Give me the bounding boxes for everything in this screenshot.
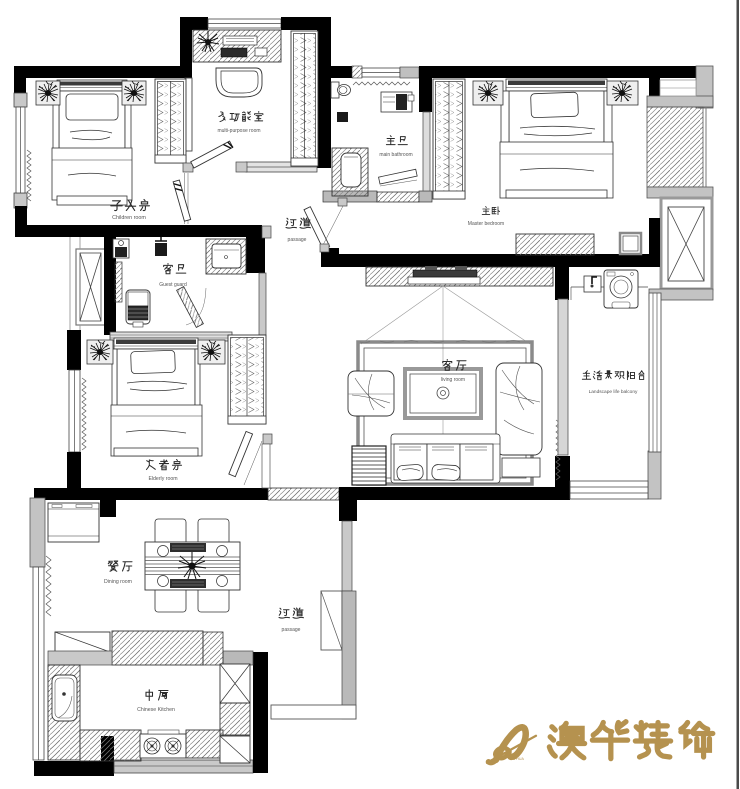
svg-text:Master bedroom: Master bedroom [468, 221, 504, 227]
svg-text:Guest guard: Guest guard [159, 282, 187, 288]
svg-text:AO HUA: AO HUA [510, 757, 524, 761]
svg-text:living room: living room [441, 377, 465, 383]
svg-text:Elderly room: Elderly room [148, 476, 177, 482]
svg-text:Landscape life balcony: Landscape life balcony [589, 389, 638, 395]
svg-text:Dining room: Dining room [104, 579, 132, 585]
svg-text:passage: passage [282, 627, 301, 633]
svg-text:main bathroom: main bathroom [379, 152, 412, 158]
svg-text:passage: passage [288, 237, 307, 243]
svg-text:Children room: Children room [112, 215, 146, 221]
svg-text:multi-purpose room: multi-purpose room [217, 128, 260, 134]
svg-text:Chinese Kitchen: Chinese Kitchen [137, 707, 175, 713]
